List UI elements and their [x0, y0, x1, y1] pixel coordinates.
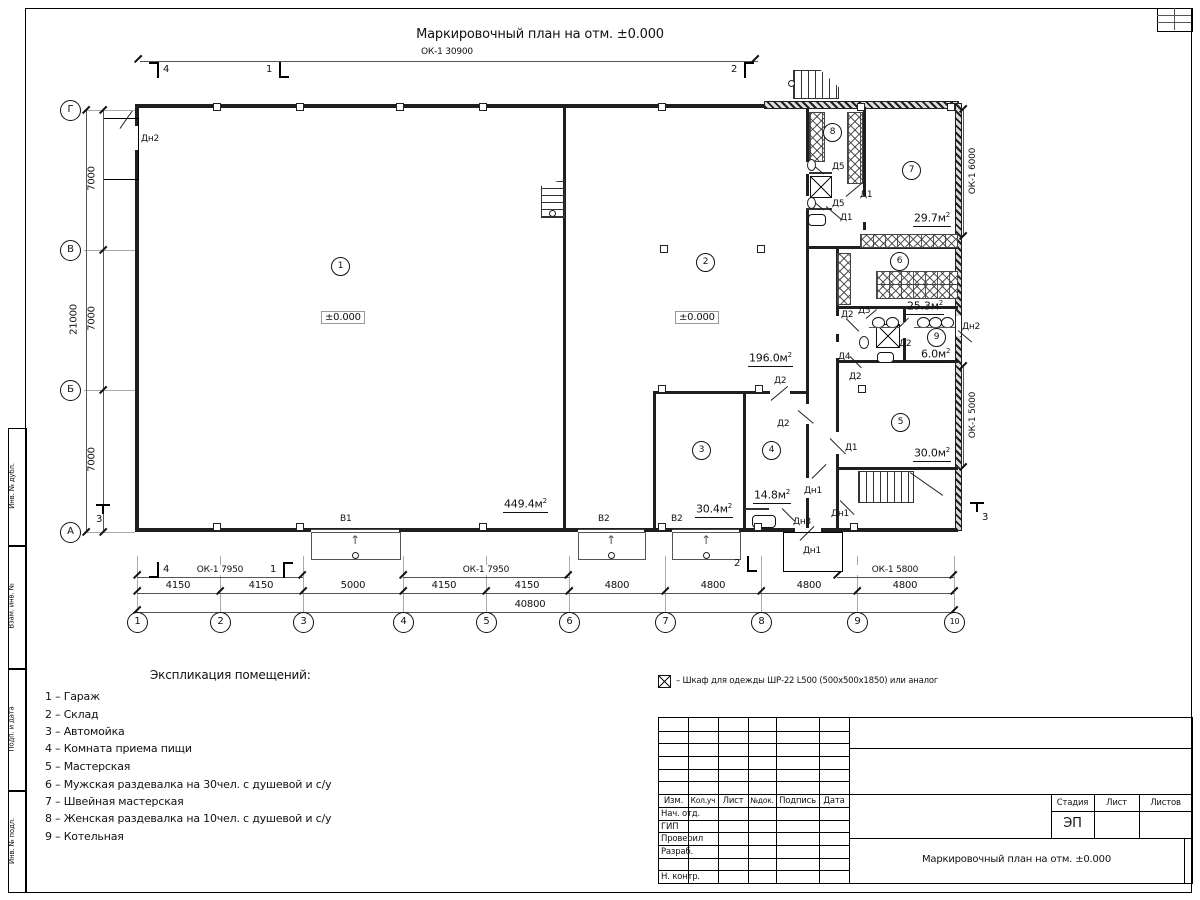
section-mark-label: 1 [266, 64, 272, 75]
plan-title: Маркировочный план на отм. ±0.000 [330, 27, 750, 42]
tb-row-nachotd: Нач. отд. [661, 809, 700, 819]
tb-col-izm: Изм. [659, 796, 688, 806]
axis-bubble-1: 1 [127, 612, 148, 633]
dim-label: 4150 [153, 580, 203, 591]
door-label: Дн1 [800, 546, 824, 556]
dim-label: 40800 [500, 599, 560, 610]
tb-row-proveril: Проверил [661, 834, 703, 844]
axis-bubble-6: 6 [559, 612, 580, 633]
column [658, 523, 666, 531]
door-label: Д1 [840, 213, 852, 223]
room-circle-7: 7 [902, 161, 921, 180]
door-label: Дн1 [804, 486, 822, 496]
dim-label: 7000 [87, 294, 98, 344]
interior-stair [858, 471, 914, 503]
section-mark [149, 576, 159, 578]
up-arrow-icon: ↑ [593, 533, 629, 547]
tb-sheet-label: Лист [1094, 798, 1139, 808]
axis-bubble-b: Б [60, 380, 81, 401]
stair-marker [549, 210, 556, 217]
axis-bubble-3: 3 [293, 612, 314, 633]
corner-stamp [1157, 8, 1193, 32]
legend-title: Экспликация помещений: [150, 668, 311, 682]
dim-line [403, 577, 569, 578]
tb-row-razrab: Разраб. [661, 847, 693, 857]
gate-marker [703, 552, 710, 559]
column [296, 523, 304, 531]
column [660, 245, 668, 253]
wardrobe-note: – Шкаф для одежды ШР-22 L500 (500x500x18… [676, 676, 938, 686]
dim-line [837, 577, 954, 578]
tb-stage-label: Стадия [1051, 798, 1094, 808]
door-label: Д5 [832, 199, 844, 209]
section-mark [157, 62, 159, 78]
ext-line [84, 390, 135, 391]
wall-segment [653, 391, 656, 528]
dim-label: ОК-1 7950 [180, 565, 260, 575]
column [857, 103, 865, 111]
section-mark-label: 2 [731, 64, 737, 75]
legend-item: 1 – Гараж [45, 690, 100, 703]
dim-label: ОК-1 7950 [446, 565, 526, 575]
door-label: Дн3 [793, 517, 811, 527]
dim-line [137, 612, 954, 613]
axis-bubble-8: 8 [751, 612, 772, 633]
door-label: Д2 [849, 372, 861, 382]
sink [807, 159, 816, 171]
section-mark [102, 506, 104, 514]
ext-line [761, 556, 762, 614]
dim-line [140, 61, 758, 62]
column [757, 245, 765, 253]
section-mark [283, 562, 285, 578]
gate-marker [352, 552, 359, 559]
ext-line [403, 556, 404, 614]
area-label-6: 25.3м2 [906, 299, 944, 315]
dim-label: 4800 [784, 580, 834, 591]
sink [807, 197, 816, 209]
top-window-dim-label: ОК-1 30900 [421, 47, 473, 57]
room-circle-9: 9 [927, 328, 946, 347]
legend-item: 2 – Склад [45, 708, 98, 721]
area-label-5: 30.0м2 [913, 446, 951, 462]
dim-line [137, 577, 303, 578]
axis-bubble-5: 5 [476, 612, 497, 633]
legend-item: 9 – Котельная [45, 830, 124, 843]
room-circle-1: 1 [331, 257, 350, 276]
column [396, 103, 404, 111]
wardrobe-row [847, 112, 863, 184]
area-label-9: 6.0м2 [920, 347, 951, 363]
section-mark [976, 504, 978, 512]
axis-bubble-g: Г [60, 100, 81, 121]
area-label-3: 30.4м2 [695, 502, 733, 518]
ext-line [84, 532, 135, 533]
dim-label: 21000 [69, 290, 80, 350]
axis-bubble-a: А [60, 522, 81, 543]
dim-line [137, 593, 954, 594]
axis-bubble-v: В [60, 240, 81, 261]
column [850, 523, 858, 531]
section-mark-label: 4 [163, 64, 169, 75]
dim-line [103, 110, 104, 532]
ext-line [303, 556, 304, 614]
dim-label: ОК-1 5000 [968, 380, 978, 450]
title-block: Изм. Кол.уч Лист №док. Подпись Дата Нач.… [658, 717, 1193, 884]
section-mark [747, 570, 757, 572]
door-label: Д5 [832, 162, 844, 172]
room-circle-5: 5 [891, 413, 910, 432]
toilet [808, 214, 826, 226]
margin-label: Подп. и дата [8, 706, 16, 751]
legend-item: 5 – Мастерская [45, 760, 130, 773]
axis-bubble-4: 4 [393, 612, 414, 633]
ext-line [84, 250, 135, 251]
corner-stamp-line [1174, 8, 1175, 30]
margin-box: Взам. инв. № [8, 545, 27, 670]
section-mark [283, 562, 293, 564]
section-mark-label: 4 [163, 564, 169, 575]
tb-row-nkontr: Н. контр. [661, 872, 700, 882]
wardrobe-row [809, 112, 825, 162]
margin-box: Инв. № дубл. [8, 428, 27, 547]
room-circle-4: 4 [762, 441, 781, 460]
wardrobe-row [860, 234, 958, 248]
gate-label: В2 [598, 514, 610, 524]
margin-box: Инв. № подл. [8, 790, 27, 893]
dim-label: 4800 [880, 580, 930, 591]
sink-shelf [869, 327, 900, 328]
wardrobe-row [837, 253, 851, 305]
wall-segment [137, 104, 765, 108]
wardrobe-row [876, 284, 958, 299]
dim-label: 5000 [328, 580, 378, 591]
margin-label: Взам. инв. № [8, 583, 16, 628]
axis-bubble-10: 10 [944, 612, 965, 633]
column [754, 523, 762, 531]
tb-sheets-label: Листов [1139, 798, 1192, 808]
margin-label: Инв. № дубл. [8, 463, 16, 509]
room-circle-6: 6 [890, 252, 909, 271]
dim-label: 7000 [87, 435, 98, 485]
dim-label: 4800 [688, 580, 738, 591]
margin-box: Подп. и дата [8, 668, 27, 792]
wall-segment [563, 108, 566, 528]
wall-segment [836, 467, 958, 470]
door-opening [836, 432, 839, 454]
legend-item: 7 – Швейная мастерская [45, 795, 184, 808]
tb-row-gip: ГИП [661, 822, 678, 832]
door-label: Д2 [841, 310, 853, 320]
gate-label: В2 [671, 514, 683, 524]
partition [806, 172, 832, 174]
gate-marker [608, 552, 615, 559]
dim-label: 7000 [87, 154, 98, 204]
dim-label: 4150 [502, 580, 552, 591]
tb-col-kol: Кол.уч [688, 796, 718, 805]
door-label: Д1 [860, 190, 872, 200]
tb-col-list: Лист [718, 796, 748, 806]
wardrobe-symbol-icon [658, 675, 671, 688]
room-circle-8: 8 [823, 123, 842, 142]
door-label: Дн2 [141, 134, 159, 144]
column [755, 385, 763, 393]
dim-label: ОК-1 5800 [855, 565, 935, 575]
ext-line [84, 110, 135, 111]
column [947, 103, 955, 111]
tb-doc-title: Маркировочный план на отм. ±0.000 [849, 854, 1184, 865]
door-label: Дн1 [831, 509, 849, 519]
elevation-mark: ±0.000 [321, 311, 365, 324]
section-mark [744, 62, 746, 78]
section-mark-label: 1 [270, 564, 276, 575]
section-mark-label: 2 [734, 558, 740, 569]
tb-stage-value: ЭП [1051, 816, 1094, 831]
column [213, 523, 221, 531]
column [296, 103, 304, 111]
column [658, 103, 666, 111]
up-arrow-icon: ↑ [688, 533, 724, 547]
area-label-1: 449.4м2 [503, 497, 548, 513]
gate-label: В1 [340, 514, 352, 524]
section-mark-label: 3 [982, 512, 988, 523]
column [479, 523, 487, 531]
door-label: Д2 [777, 419, 789, 429]
section-mark [149, 62, 159, 64]
room-circle-2: 2 [696, 253, 715, 272]
stair-marker [788, 80, 795, 87]
dim-label: 4800 [592, 580, 642, 591]
shower-cabin [810, 176, 832, 198]
door-label: Д2 [774, 376, 786, 386]
tb-col-data: Дата [819, 796, 849, 806]
section-mark [279, 76, 289, 78]
legend-item: 6 – Мужская раздевалка на 30чел. с душев… [45, 778, 331, 791]
door-opening [903, 322, 906, 338]
up-arrow-icon: ↑ [337, 533, 373, 547]
tb-col-ndok: №док. [748, 796, 776, 805]
ext-line [569, 556, 570, 614]
area-label-7: 29.7м2 [913, 211, 951, 227]
area-label-2: 196.0м2 [748, 351, 793, 367]
door-opening [836, 316, 839, 334]
room-circle-3: 3 [692, 441, 711, 460]
ext-line [137, 556, 138, 614]
axis-bubble-2: 2 [210, 612, 231, 633]
area-label-4: 14.8м2 [753, 488, 791, 504]
margin-label: Инв. № подл. [8, 818, 16, 864]
dim-line [963, 367, 964, 468]
elevation-mark: ±0.000 [675, 311, 719, 324]
column [858, 385, 866, 393]
door-label: Дн2 [962, 322, 980, 332]
ext-line [665, 556, 666, 614]
dim-label: ОК-1 6000 [968, 136, 978, 206]
door-label: Д2 [899, 339, 911, 349]
legend-item: 8 – Женская раздевалка на 10чел. с душев… [45, 812, 331, 825]
door-label: Д5 [858, 306, 870, 316]
tb-col-podpis: Подпись [776, 796, 819, 806]
door-label: Д4 [838, 352, 850, 362]
column [658, 385, 666, 393]
sink [859, 336, 869, 349]
legend-item: 4 – Комната приема пищи [45, 742, 192, 755]
column [213, 103, 221, 111]
dim-label: 4150 [236, 580, 286, 591]
drawing-sheet: Инв. № дубл. Взам. инв. № Подп. и дата И… [0, 0, 1200, 900]
axis-bubble-9: 9 [847, 612, 868, 633]
ext-line [954, 556, 955, 614]
partition [745, 508, 769, 510]
door-label: Д1 [845, 443, 857, 453]
section-mark-label: 3 [96, 514, 102, 525]
toilet [877, 352, 894, 363]
legend-item: 3 – Автомойка [45, 725, 125, 738]
dim-line [963, 110, 964, 237]
section-mark [744, 62, 754, 64]
column [479, 103, 487, 111]
axis-bubble-7: 7 [655, 612, 676, 633]
dim-label: 4150 [419, 580, 469, 591]
